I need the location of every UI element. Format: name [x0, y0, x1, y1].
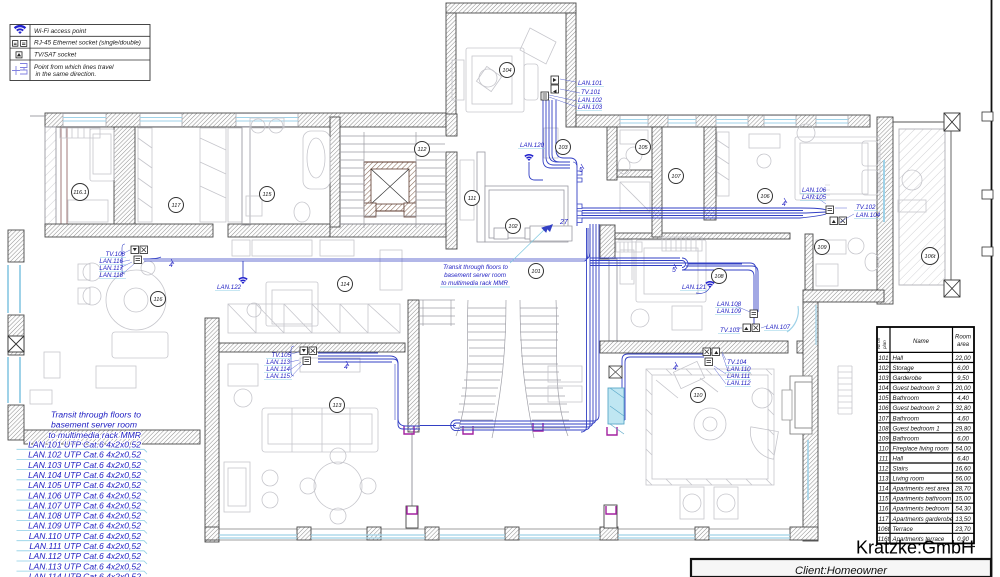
svg-text:Apartments rest area: Apartments rest area [892, 486, 951, 493]
svg-text:TV.104: TV.104 [727, 359, 747, 366]
svg-text:102: 102 [878, 365, 889, 372]
svg-text:105: 105 [638, 145, 648, 151]
svg-text:15,00: 15,00 [955, 496, 971, 503]
svg-text:Stairs: Stairs [893, 466, 909, 473]
svg-text:area: area [957, 342, 970, 348]
svg-text:№ on: № on [876, 337, 881, 349]
svg-text:LAN.121: LAN.121 [682, 284, 706, 291]
svg-text:116: 116 [879, 506, 889, 513]
svg-text:116.1: 116.1 [73, 190, 87, 196]
svg-text:in the same direction.: in the same direction. [36, 71, 97, 78]
svg-text:LAN.110: LAN.110 [727, 366, 751, 373]
svg-text:Name: Name [913, 339, 930, 345]
svg-text:54,00: 54,00 [955, 445, 971, 452]
svg-text:104: 104 [878, 385, 889, 392]
svg-text:LAN.108: LAN.108 [717, 301, 742, 308]
svg-text:106: 106 [760, 194, 770, 200]
svg-text:LAN.113: LAN.113 [266, 359, 290, 366]
svg-text:Apartments garderobe: Apartments garderobe [892, 516, 954, 523]
svg-text:TV.102: TV.102 [856, 204, 876, 211]
svg-text:4: 4 [344, 364, 348, 371]
svg-text:4,40: 4,40 [957, 395, 969, 402]
svg-text:4,60: 4,60 [957, 415, 969, 422]
svg-text:Transit through floors to: Transit through floors to [443, 264, 508, 271]
svg-text:114: 114 [341, 282, 350, 288]
svg-text:115: 115 [263, 192, 273, 198]
svg-text:LAN.115: LAN.115 [266, 373, 290, 380]
svg-text:54,30: 54,30 [955, 506, 971, 513]
svg-text:TV.105: TV.105 [272, 352, 292, 359]
svg-text:LAN.117: LAN.117 [99, 265, 123, 272]
svg-text:105: 105 [878, 395, 889, 402]
svg-text:LAN.116: LAN.116 [99, 258, 123, 265]
svg-text:LAN.110 UTP Cat.6 4x2x0,52: LAN.110 UTP Cat.6 4x2x0,52 [29, 531, 141, 541]
svg-text:103: 103 [558, 145, 568, 151]
svg-text:LAN.122: LAN.122 [217, 284, 242, 291]
svg-text:117: 117 [879, 516, 889, 523]
svg-text:LAN.112: LAN.112 [727, 380, 751, 387]
svg-text:to multimedia rack MMR: to multimedia rack MMR [48, 430, 141, 440]
svg-text:113: 113 [333, 403, 343, 409]
svg-text:LAN.109: LAN.109 [717, 308, 742, 315]
svg-text:16,60: 16,60 [955, 466, 971, 473]
svg-text:6,00: 6,00 [957, 365, 969, 372]
svg-text:RJ-45 Ethernet socket (single/: RJ-45 Ethernet socket (single/double) [34, 40, 141, 47]
svg-text:Hall: Hall [893, 355, 904, 362]
svg-text:LAN.104 UTP Cat.6 4x2x0,52: LAN.104 UTP Cat.6 4x2x0,52 [28, 470, 141, 480]
svg-text:plan: plan [882, 340, 887, 350]
svg-text:LAN.120: LAN.120 [520, 142, 545, 149]
svg-text:Garderobe: Garderobe [893, 375, 923, 382]
svg-text:116: 116 [154, 297, 164, 303]
svg-text:LAN.109 UTP Cat.6 4x2x0,52: LAN.109 UTP Cat.6 4x2x0,52 [28, 521, 141, 531]
svg-text:6,40: 6,40 [957, 456, 969, 463]
svg-text:109: 109 [878, 435, 889, 442]
svg-text:108: 108 [714, 274, 724, 280]
svg-text:LAN.107: LAN.107 [766, 324, 791, 331]
svg-text:23,70: 23,70 [954, 526, 971, 533]
svg-text:28,70: 28,70 [954, 486, 971, 493]
svg-text:4: 4 [169, 262, 173, 269]
svg-text:LAN.114: LAN.114 [266, 366, 290, 373]
svg-text:Kratzke:GmbH: Kratzke:GmbH [856, 538, 974, 558]
svg-text:101: 101 [878, 355, 888, 362]
svg-text:LAN.112 UTP Cat.6 4x2x0,52: LAN.112 UTP Cat.6 4x2x0,52 [29, 551, 141, 561]
svg-text:13,50: 13,50 [955, 516, 971, 523]
svg-text:LAN.107 UTP Cat.6 4x2x0,52: LAN.107 UTP Cat.6 4x2x0,52 [28, 500, 141, 510]
svg-text:Apartments bathroom: Apartments bathroom [892, 496, 952, 503]
svg-text:113: 113 [879, 476, 889, 483]
svg-text:22,00: 22,00 [954, 355, 971, 362]
svg-text:LAN.111: LAN.111 [727, 373, 750, 380]
svg-text:LAN.105: LAN.105 [802, 194, 827, 201]
svg-text:LAN.102 UTP Cat.6 4x2x0,52: LAN.102 UTP Cat.6 4x2x0,52 [28, 450, 141, 460]
svg-text:112: 112 [879, 466, 889, 473]
svg-text:Bathroom: Bathroom [893, 435, 919, 442]
svg-text:107: 107 [878, 415, 889, 422]
svg-text:115: 115 [879, 496, 889, 503]
svg-text:5: 5 [579, 167, 583, 174]
svg-text:5: 5 [672, 267, 676, 274]
svg-text:Fireplace living room: Fireplace living room [893, 445, 949, 452]
svg-text:LAN.105 UTP Cat.6 4x2x0,52: LAN.105 UTP Cat.6 4x2x0,52 [28, 480, 141, 490]
svg-text:32,80: 32,80 [955, 405, 971, 412]
svg-text:109: 109 [817, 245, 826, 251]
svg-text:103: 103 [878, 375, 889, 382]
svg-text:LAN.104: LAN.104 [856, 212, 881, 219]
svg-text:LAN.101: LAN.101 [578, 80, 602, 87]
svg-text:104: 104 [502, 68, 511, 74]
svg-text:Bathroom: Bathroom [893, 415, 919, 422]
svg-text:LAN.103 UTP Cat.6 4x2x0,52: LAN.103 UTP Cat.6 4x2x0,52 [28, 460, 141, 470]
svg-text:LAN.106 UTP Cat.6 4x2x0,52: LAN.106 UTP Cat.6 4x2x0,52 [28, 490, 141, 500]
svg-text:TV.103: TV.103 [720, 327, 740, 334]
svg-text:106t: 106t [878, 526, 890, 533]
svg-text:LAN.113 UTP Cat.6 4x2x0,52: LAN.113 UTP Cat.6 4x2x0,52 [29, 561, 141, 571]
svg-text:Guest bedroom 2: Guest bedroom 2 [893, 405, 941, 412]
svg-text:102: 102 [508, 224, 518, 230]
svg-text:Room: Room [955, 335, 971, 341]
svg-text:LAN.114 UTP Cat.6 4x2x0,52: LAN.114 UTP Cat.6 4x2x0,52 [29, 572, 141, 577]
svg-text:27: 27 [559, 219, 569, 226]
svg-text:basement server room: basement server room [444, 272, 506, 279]
svg-text:112: 112 [418, 147, 428, 153]
svg-text:6,00: 6,00 [957, 435, 969, 442]
svg-text:Bathroom: Bathroom [893, 395, 919, 402]
svg-text:Living room: Living room [893, 476, 925, 483]
svg-text:20,00: 20,00 [954, 385, 971, 392]
svg-text:110: 110 [694, 393, 704, 399]
svg-text:TV.101: TV.101 [581, 89, 601, 96]
svg-text:4: 4 [782, 201, 786, 208]
svg-text:4: 4 [673, 365, 677, 372]
svg-text:Wi-Fi access point: Wi-Fi access point [34, 28, 86, 35]
svg-text:TV.106: TV.106 [106, 251, 126, 258]
svg-text:Hall: Hall [893, 456, 904, 463]
svg-text:Terrace: Terrace [893, 526, 914, 533]
svg-text:108: 108 [878, 425, 889, 432]
svg-text:9,50: 9,50 [957, 375, 969, 382]
svg-text:LAN.106: LAN.106 [802, 187, 827, 194]
svg-text:101: 101 [531, 269, 540, 275]
svg-text:111: 111 [879, 456, 888, 463]
svg-text:56,00: 56,00 [955, 476, 971, 483]
svg-text:basement server room: basement server room [51, 420, 137, 430]
svg-text:106t: 106t [925, 254, 936, 260]
svg-text:LAN.102: LAN.102 [578, 97, 603, 104]
svg-text:Transit through floors to: Transit through floors to [51, 410, 141, 420]
svg-text:Storage: Storage [893, 365, 915, 372]
svg-text:110: 110 [879, 445, 889, 452]
svg-text:Point from which lines travel: Point from which lines travel [34, 64, 114, 71]
svg-text:LAN.103: LAN.103 [578, 104, 603, 111]
svg-text:29,80: 29,80 [954, 425, 971, 432]
svg-text:to multimedia rack MMR: to multimedia rack MMR [441, 280, 508, 287]
svg-text:Client:Homeowner: Client:Homeowner [795, 565, 888, 577]
svg-text:117: 117 [172, 203, 182, 209]
svg-text:Apartments bedroom: Apartments bedroom [892, 506, 950, 513]
svg-text:LAN.111 UTP Cat.6 4x2x0,52: LAN.111 UTP Cat.6 4x2x0,52 [29, 541, 141, 551]
svg-text:Guest bedroom 1: Guest bedroom 1 [893, 425, 940, 432]
svg-text:TV/SAT socket: TV/SAT socket [34, 51, 76, 58]
svg-text:Guest bedroom 3: Guest bedroom 3 [893, 385, 941, 392]
svg-text:111: 111 [468, 196, 477, 202]
svg-text:114: 114 [879, 486, 889, 493]
svg-text:LAN.118: LAN.118 [99, 272, 123, 279]
svg-text:LAN.108 UTP Cat.6 4x2x0,52: LAN.108 UTP Cat.6 4x2x0,52 [28, 511, 141, 521]
svg-text:LAN.101 UTP Cat.6 4x2x0,52: LAN.101 UTP Cat.6 4x2x0,52 [28, 440, 141, 450]
svg-text:106: 106 [878, 405, 889, 412]
svg-text:107: 107 [671, 174, 681, 180]
